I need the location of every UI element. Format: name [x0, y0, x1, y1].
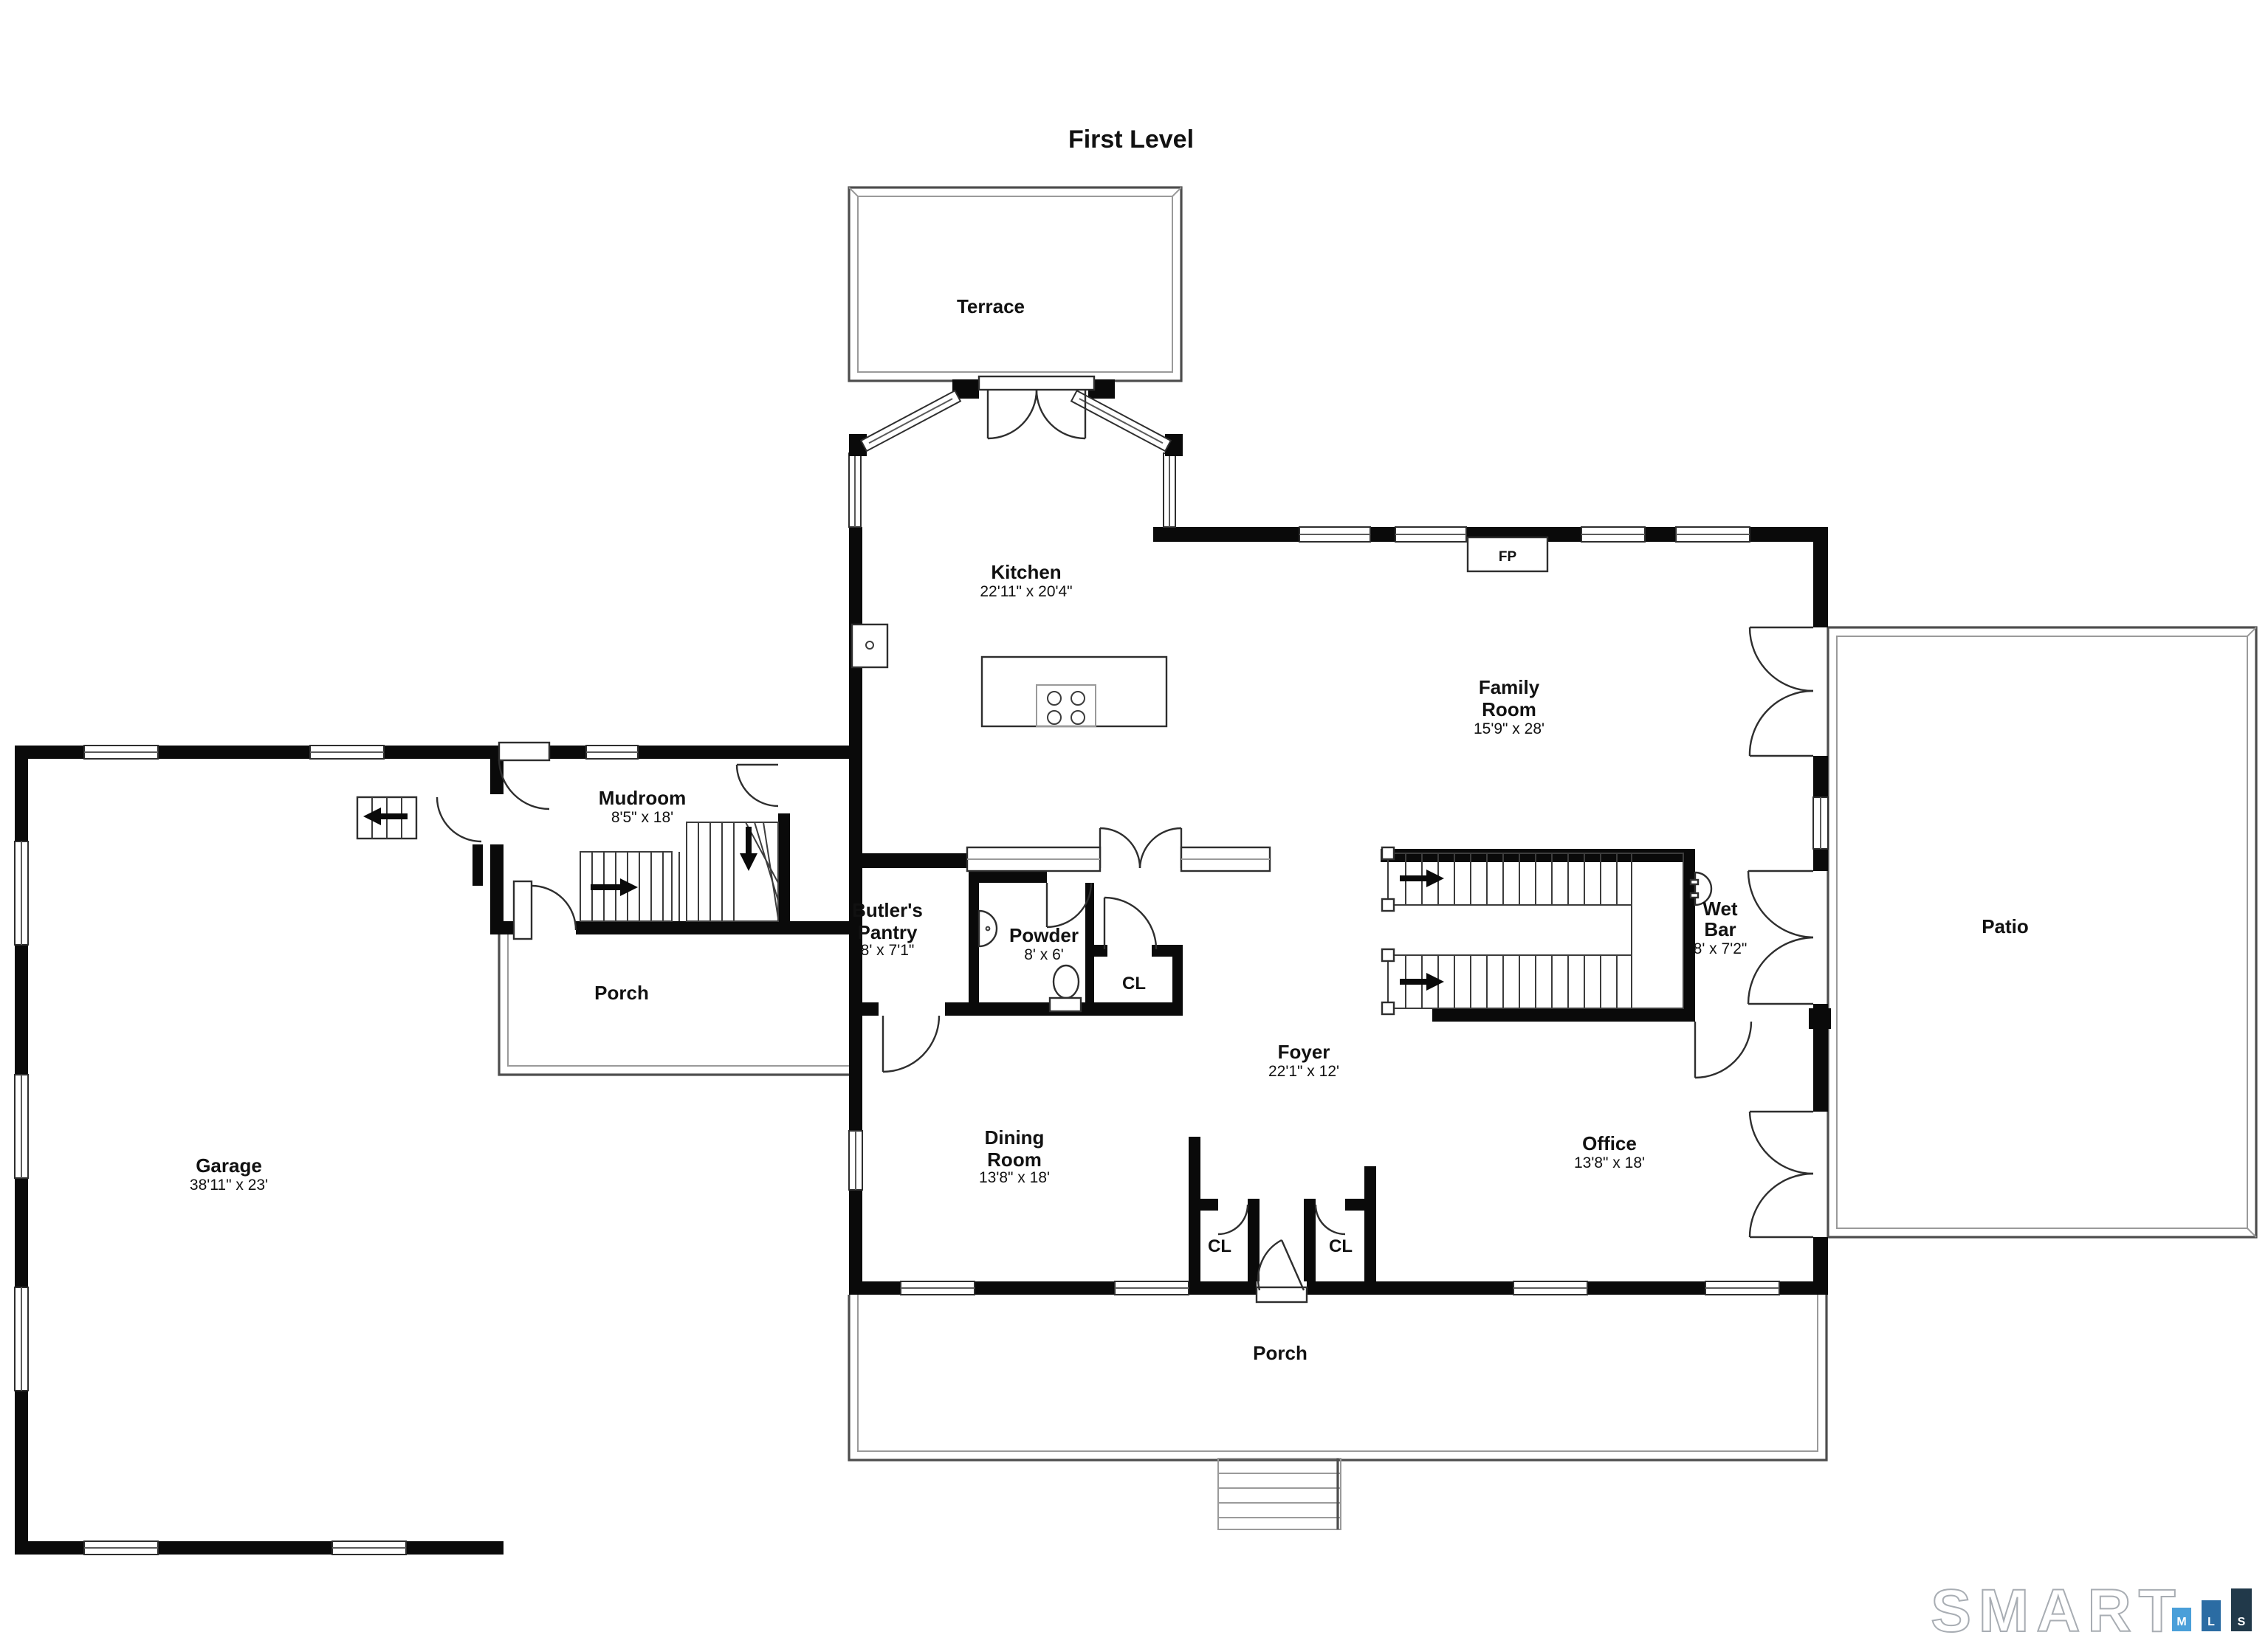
- dining-room-dims: 13'8" x 18': [979, 1169, 1050, 1186]
- butlers-pantry-label-1: Butler's: [852, 899, 923, 921]
- page-title: First Level: [1068, 125, 1194, 154]
- garage-dims: 38'11" x 23': [190, 1177, 268, 1194]
- logo-letter-m: M: [2176, 1616, 2186, 1628]
- logo-wordmark: SMART: [1931, 1577, 2183, 1645]
- kitchen-label: Kitchen: [991, 561, 1061, 583]
- floor-plan-svg: FP First Level Terrace Kitchen 22'11" x …: [0, 0, 2268, 1649]
- office-label: Office: [1582, 1132, 1637, 1154]
- side-porch-outline: [499, 934, 849, 1075]
- powder-dims: 8' x 6': [1024, 946, 1064, 963]
- logo-letter-l: L: [2207, 1616, 2215, 1628]
- wet-bar-dims: 8' x 7'2": [1694, 940, 1748, 957]
- family-room-label-2: Room: [1482, 698, 1536, 720]
- exterior-walls: [15, 527, 1828, 1555]
- terrace-outline: [849, 187, 1181, 381]
- fireplace-label: FP: [1499, 549, 1517, 565]
- dining-room-label-2: Room: [987, 1149, 1042, 1171]
- kitchen-appliance: [852, 624, 887, 667]
- front-porch-outline: [849, 1295, 1827, 1460]
- powder-sink: [979, 911, 997, 946]
- family-room-label-1: Family: [1479, 676, 1540, 698]
- dining-room-label-1: Dining: [985, 1126, 1045, 1149]
- patio-label: Patio: [1982, 915, 2029, 937]
- front-porch-label: Porch: [1253, 1342, 1307, 1364]
- windows: [15, 453, 1828, 1555]
- patio-outline: [1828, 627, 2256, 1237]
- office-dims: 13'8" x 18': [1574, 1154, 1645, 1171]
- wet-bar-label-2: Bar: [1704, 918, 1736, 940]
- kitchen-counter: [967, 847, 1270, 871]
- garage-label: Garage: [196, 1154, 262, 1177]
- front-closet-right-label: CL: [1329, 1236, 1353, 1256]
- doors: [437, 627, 1813, 1302]
- terrace-label: Terrace: [957, 295, 1025, 317]
- mudroom-stairs: [580, 822, 778, 921]
- family-room-dims: 15'9" x 28': [1474, 720, 1544, 737]
- kitchen-dims: 22'11" x 20'4": [980, 583, 1072, 600]
- front-closet-left-label: CL: [1208, 1236, 1231, 1256]
- foyer-label: Foyer: [1278, 1041, 1330, 1063]
- foyer-stairs: [1382, 847, 1683, 1014]
- fireplace: FP: [1468, 537, 1547, 571]
- foyer-dims: 22'1" x 12': [1268, 1063, 1339, 1080]
- butlers-pantry-label-2: Pantry: [858, 921, 918, 943]
- garage-steps: [357, 797, 416, 839]
- floor-plan-page: FP First Level Terrace Kitchen 22'11" x …: [0, 0, 2268, 1649]
- mudroom-dims: 8'5" x 18': [611, 809, 673, 826]
- kitchen-island: [982, 657, 1166, 726]
- toilet: [1050, 965, 1081, 1011]
- hall-closet-label: CL: [1122, 974, 1146, 994]
- bay-window: [849, 376, 1183, 456]
- side-porch-label: Porch: [594, 982, 649, 1004]
- logo-letter-s: S: [2238, 1616, 2246, 1628]
- wet-bar-label-1: Wet: [1702, 898, 1738, 920]
- porch-steps: [1218, 1459, 1341, 1529]
- smartmls-logo: SMART M L S: [1931, 1577, 2252, 1645]
- mudroom-label: Mudroom: [599, 787, 686, 809]
- butlers-pantry-dims: 8' x 7'1": [861, 942, 915, 959]
- powder-label: Powder: [1009, 924, 1079, 946]
